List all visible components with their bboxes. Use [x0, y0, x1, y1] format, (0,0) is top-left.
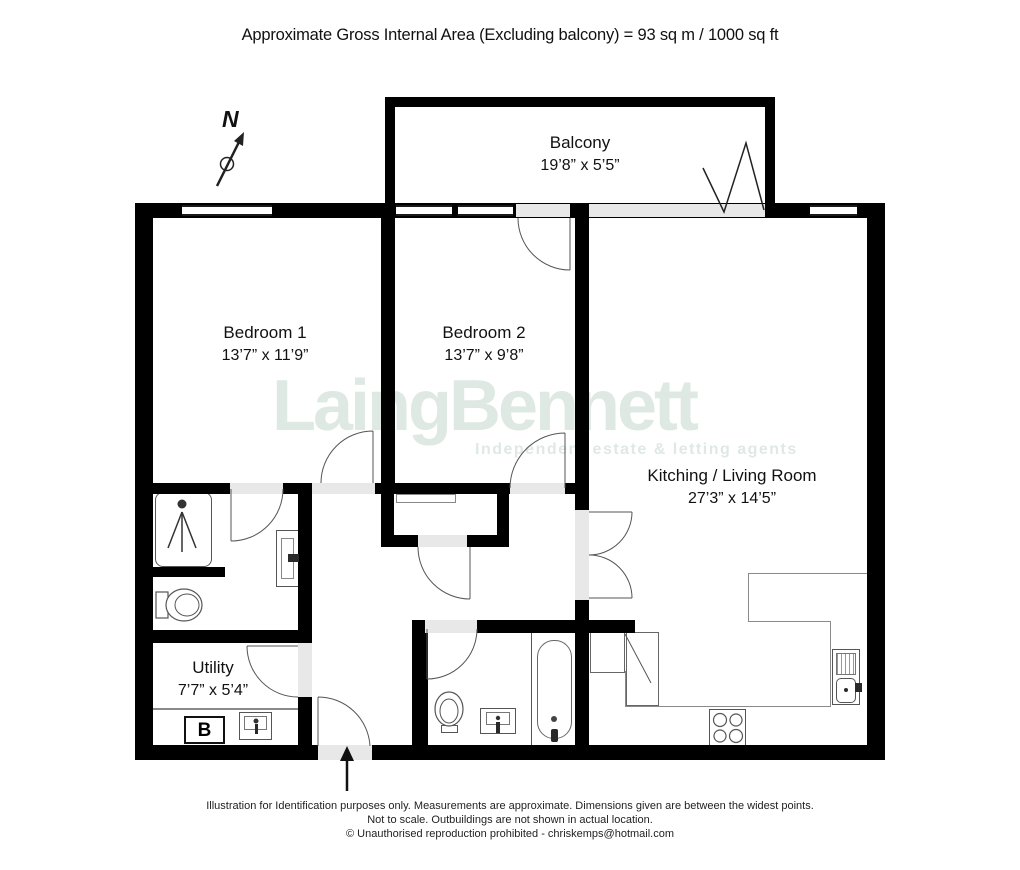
hall-double-door-bottom-arc [589, 555, 632, 598]
page-title: Approximate Gross Internal Area (Excludi… [0, 26, 1020, 45]
room-dims: 13’7” x 9’8” [384, 344, 584, 367]
room-dims: 7’7” x 5’4” [133, 679, 293, 702]
north-arrow-icon [217, 132, 244, 186]
room-label-bedroom1: Bedroom 1 13’7” x 11’9” [165, 321, 365, 367]
disclaimer-line2: Not to scale. Outbuildings are not shown… [0, 814, 1020, 827]
room-label-bedroom2: Bedroom 2 13’7” x 9’8” [384, 321, 584, 367]
room-name: Kitching / Living Room [602, 464, 862, 487]
room-label-kitchen-living: Kitching / Living Room 27’3” x 14’5” [602, 464, 862, 510]
shower-head-icon [168, 500, 196, 553]
door-arcs [231, 218, 651, 746]
disclaimer-line3: © Unauthorised reproduction prohibited -… [0, 828, 1020, 841]
cupboard-door-line [625, 634, 651, 683]
room-name: Utility [133, 656, 293, 679]
hob-rings [714, 714, 743, 743]
compass-north-label: N [222, 106, 239, 133]
basin-dot [496, 716, 500, 720]
balcony-door-arc [518, 218, 570, 270]
room-name: Bedroom 2 [384, 321, 584, 344]
room-dims: 19’8” x 5’5” [480, 154, 680, 177]
bedroom1-door-arc [321, 431, 373, 483]
room-name: Balcony [480, 131, 680, 154]
wc-toilet [156, 589, 202, 621]
bedroom2-door-arc [510, 433, 565, 488]
utility-sink-dot [254, 719, 259, 724]
room-label-utility: Utility 7’7” x 5’4” [133, 656, 293, 702]
hall-double-door-top-arc [589, 512, 632, 555]
bath-plug-dot [551, 716, 557, 722]
room-label-balcony: Balcony 19’8” x 5’5” [480, 131, 680, 177]
room-name: Bedroom 1 [165, 321, 365, 344]
room-dims: 13’7” x 11’9” [165, 344, 365, 367]
floorplan-canvas: Approximate Gross Internal Area (Excludi… [0, 0, 1020, 870]
ensuite-door-arc [231, 489, 283, 541]
balcony-break-zigzag [703, 143, 764, 212]
bathroom-door-arc [427, 629, 477, 679]
closet-door-arc [418, 547, 470, 599]
front-door-arc [318, 697, 370, 746]
entrance-arrow-icon [340, 746, 354, 791]
disclaimer-line1: Illustration for Identification purposes… [0, 800, 1020, 813]
bathroom-toilet [435, 692, 463, 726]
room-dims: 27’3” x 14’5” [602, 487, 862, 510]
